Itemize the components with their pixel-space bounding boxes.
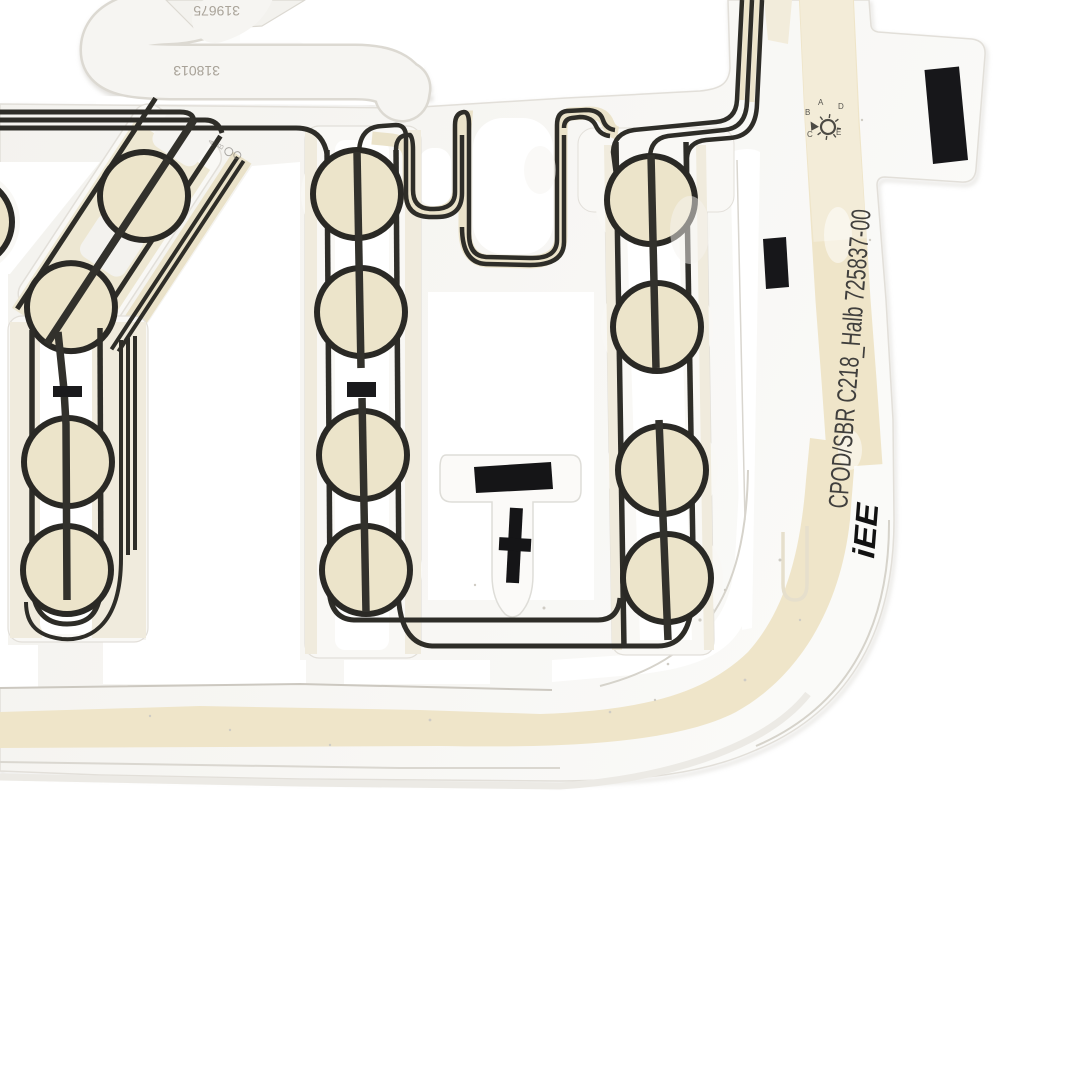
svg-text:B: B (805, 108, 810, 117)
svg-text:D: D (838, 102, 844, 111)
svg-text:iEE: iEE (846, 501, 885, 560)
svg-text:E: E (836, 128, 841, 137)
svg-text:318013: 318013 (173, 63, 220, 79)
svg-text:C: C (807, 130, 813, 139)
svg-text:319675: 319675 (193, 3, 240, 19)
svg-text:A: A (818, 98, 824, 107)
